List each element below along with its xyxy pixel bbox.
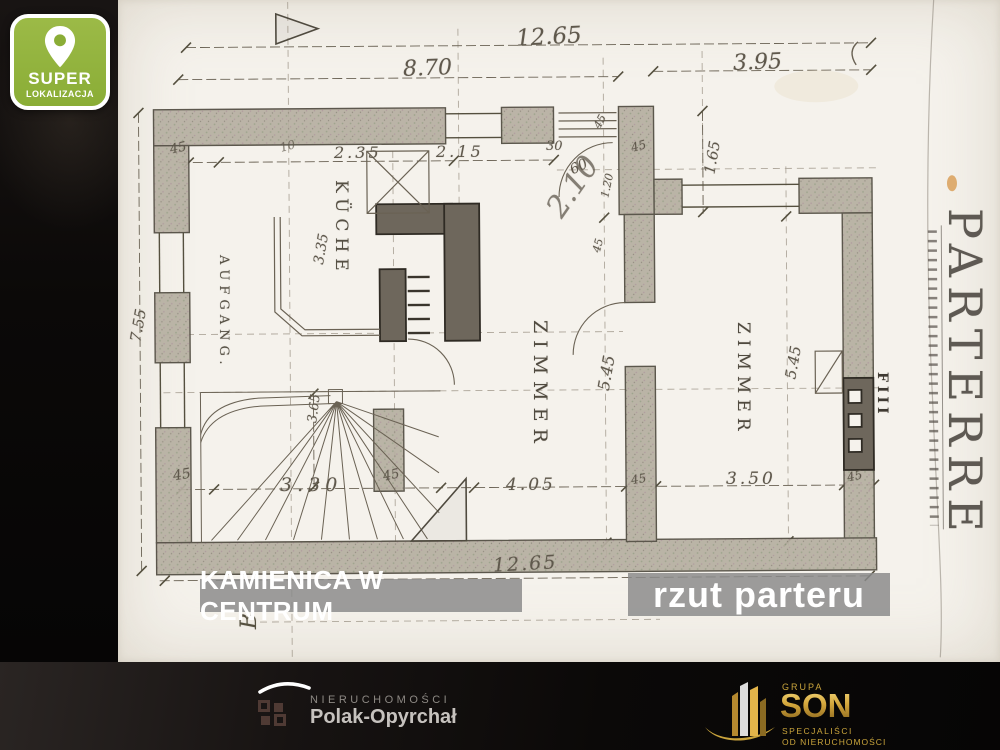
dim-top-right: 3.95 [733, 51, 783, 75]
roof-arc-icon [256, 676, 314, 696]
dim-note-10: 10 [279, 138, 297, 154]
dim-right-wall-45: 45 [846, 469, 863, 484]
agency-logo: NIERUCHOMOŚCI Polak-Opyrchał [252, 670, 502, 746]
agency-name-line1: NIERUCHOMOŚCI [310, 694, 450, 706]
dim-mid-wall-45: 45 [630, 472, 647, 486]
location-pin-icon [39, 24, 81, 70]
caption-subtitle-text: rzut parteru [653, 574, 865, 616]
dim-stair-depth: 3.65 [306, 393, 322, 423]
building-blocks-icon [258, 698, 300, 730]
dim-kitchen-width-a: 2.35 [334, 145, 382, 161]
wall-note-label: FIII [875, 372, 889, 418]
walls [153, 105, 876, 575]
group-logo: GRUPA SON SPECJALIŚCI OD NIERUCHOMOŚCI [704, 676, 894, 750]
dim-stair-45-left: 45 [172, 467, 192, 484]
dim-room-left-width: 4.05 [506, 477, 556, 494]
dim-top-left: 8.70 [403, 57, 453, 81]
dim-kitchen-width-b: 2.15 [436, 144, 484, 160]
room-label-stair-hall: AUFGANG. [217, 255, 230, 370]
floorplan-scan: 12.65 8.70 3.95 45 10 2.35 2.15 30 45 45… [118, 0, 1000, 662]
agency-name-line2: Polak-Opyrchał [310, 706, 457, 729]
gold-towers-icon [704, 678, 778, 746]
wall-window-squares [848, 390, 861, 452]
dim-porch-30: 30 [546, 140, 563, 153]
group-tagline2: OD NIERUCHOMOŚCI [782, 737, 886, 747]
door-hatch [408, 277, 430, 333]
real-estate-listing-image: { "badge": { "title": "SUPER", "subtitle… [0, 0, 1000, 750]
group-name: SON [780, 689, 852, 722]
caption-title: KAMIENICA W CENTRUM [200, 579, 522, 612]
dim-porch-45-c: 45 [591, 237, 605, 253]
dim-room-right-width: 3.50 [726, 471, 776, 488]
room-label-kitchen: KÜCHE [332, 180, 349, 277]
group-tagline1: SPECJALIŚCI [782, 726, 853, 736]
floorplan-drawing [118, 0, 1000, 662]
room-label-right: ZIMMER [734, 322, 751, 437]
floor-label-parterre: PARTERRE [942, 208, 988, 541]
dim-top-total: 12.65 [515, 24, 582, 50]
section-marker-triangles [276, 13, 467, 542]
dim-stair-width: 3.30 [280, 476, 342, 495]
super-location-badge: SUPER LOKALIZACJA [10, 14, 110, 110]
dim-stair-45-right: 45 [382, 467, 401, 483]
dim-45-top-left: 45 [169, 140, 188, 156]
dim-porch-45-b: 45 [630, 138, 648, 154]
room-label-left: ZIMMER [530, 320, 549, 450]
badge-subtitle: LOKALIZACJA [26, 89, 94, 99]
caption-title-text: KAMIENICA W CENTRUM [200, 565, 522, 627]
badge-title: SUPER [28, 70, 92, 87]
caption-subtitle: rzut parteru [628, 573, 890, 616]
